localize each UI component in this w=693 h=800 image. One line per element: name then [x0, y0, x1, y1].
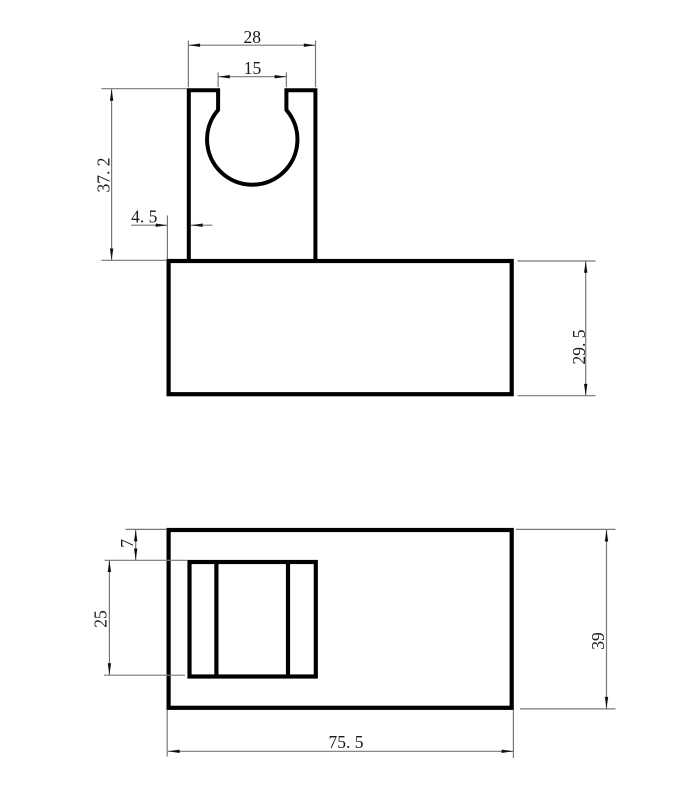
svg-text:15: 15 — [244, 58, 262, 78]
svg-text:29. 5: 29. 5 — [569, 329, 589, 364]
svg-text:37. 2: 37. 2 — [93, 158, 113, 193]
svg-text:28: 28 — [243, 27, 261, 47]
svg-text:39: 39 — [588, 632, 608, 650]
svg-text:25: 25 — [90, 610, 110, 628]
svg-text:7: 7 — [117, 539, 137, 548]
svg-text:4. 5: 4. 5 — [131, 206, 158, 226]
svg-text:75. 5: 75. 5 — [329, 732, 364, 752]
